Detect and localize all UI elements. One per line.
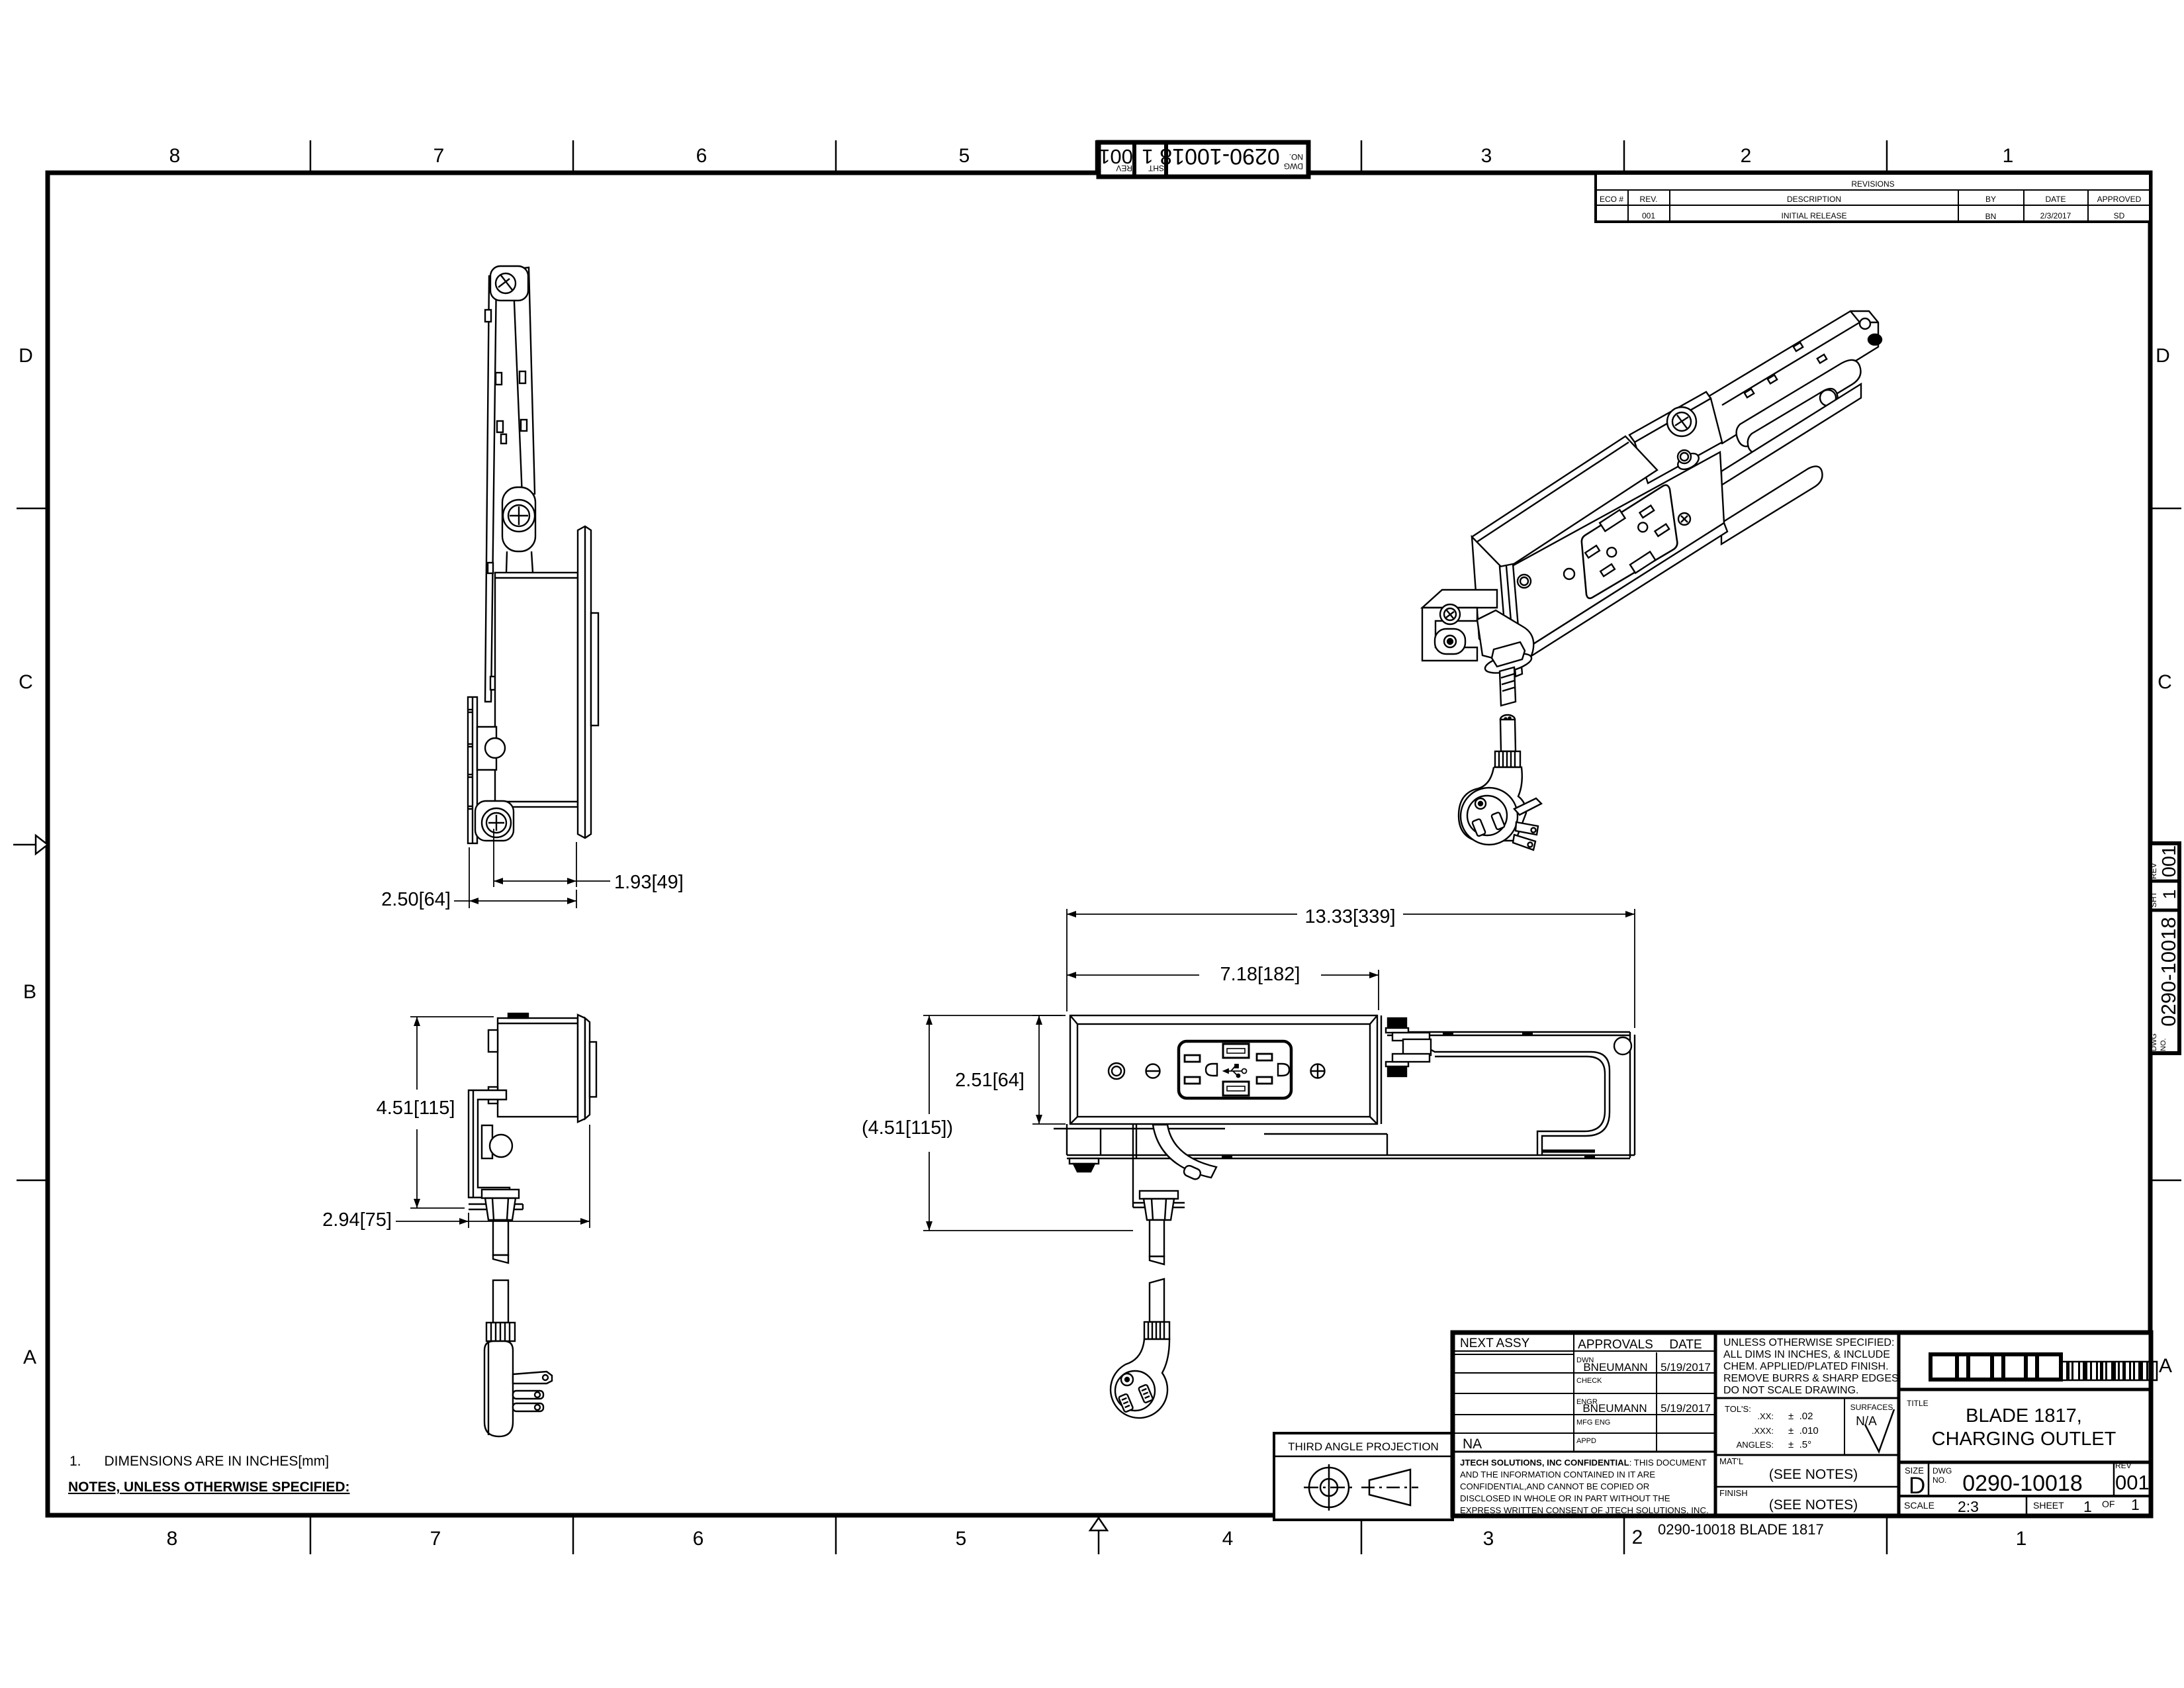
svg-text:0290-10018: 0290-10018 bbox=[1160, 144, 1280, 169]
svg-text:0290-10018 BLADE 1817: 0290-10018 BLADE 1817 bbox=[1658, 1521, 1824, 1538]
svg-text:± .010: ± .010 bbox=[1788, 1425, 1819, 1436]
svg-text:C: C bbox=[2158, 671, 2172, 693]
svg-text:BNEUMANN: BNEUMANN bbox=[1582, 1402, 1647, 1415]
svg-text:INITIAL RELEASE: INITIAL RELEASE bbox=[1782, 211, 1847, 220]
svg-text:1. DIMENSIONS ARE IN INCH: 1. DIMENSIONS ARE IN INCHES[mm] bbox=[69, 1454, 329, 1469]
svg-text:1: 1 bbox=[2003, 145, 2014, 167]
svg-text:3: 3 bbox=[1483, 1528, 1494, 1550]
svg-text:TITLE: TITLE bbox=[1907, 1399, 1929, 1408]
svg-text:± .5°: ± .5° bbox=[1788, 1439, 1811, 1450]
svg-text:REMOVE BURRS & SHARP EDGES.: REMOVE BURRS & SHARP EDGES. bbox=[1723, 1373, 1901, 1384]
svg-text:2.50[64]: 2.50[64] bbox=[381, 889, 451, 910]
svg-text:NOTES, UNLESS OTHERWISE SPECIF: NOTES, UNLESS OTHERWISE SPECIFIED: bbox=[68, 1479, 350, 1495]
svg-text:1: 1 bbox=[2160, 889, 2179, 899]
svg-text:1: 1 bbox=[2016, 1528, 2027, 1550]
svg-text:0290-10018: 0290-10018 bbox=[1962, 1471, 2083, 1496]
svg-text:NEXT ASSY: NEXT ASSY bbox=[1460, 1336, 1530, 1350]
svg-text:2.51[64]: 2.51[64] bbox=[955, 1070, 1024, 1091]
svg-text:(SEE NOTES): (SEE NOTES) bbox=[1769, 1467, 1858, 1482]
svg-text:001: 001 bbox=[1642, 211, 1655, 220]
svg-text:DATE: DATE bbox=[2045, 195, 2066, 204]
svg-text:3: 3 bbox=[1481, 145, 1492, 167]
svg-text:6: 6 bbox=[696, 145, 707, 167]
svg-text:ECO #: ECO # bbox=[1600, 195, 1623, 204]
svg-text:SURFACES: SURFACES bbox=[1850, 1403, 1893, 1412]
svg-text:REV: REV bbox=[2115, 1461, 2132, 1470]
svg-text:001: 001 bbox=[1099, 145, 1133, 168]
svg-text:1: 1 bbox=[2131, 1496, 2140, 1513]
svg-text:BY: BY bbox=[1985, 195, 1996, 204]
svg-text:DISCLOSED IN WHOLE OR IN PART: DISCLOSED IN WHOLE OR IN PART WITHOUT TH… bbox=[1460, 1493, 1670, 1503]
svg-text:± .02: ± .02 bbox=[1788, 1411, 1813, 1422]
svg-text:5: 5 bbox=[959, 145, 970, 167]
svg-text:BN: BN bbox=[1985, 212, 1997, 221]
svg-text:CHECK: CHECK bbox=[1576, 1377, 1602, 1385]
svg-text:6: 6 bbox=[693, 1528, 704, 1550]
svg-text:NO.: NO. bbox=[2160, 1038, 2167, 1051]
svg-text:DWG: DWG bbox=[2150, 1033, 2158, 1051]
svg-text:7: 7 bbox=[433, 145, 445, 167]
svg-text:APPROVALS: APPROVALS bbox=[1578, 1338, 1653, 1352]
svg-text:SCALE: SCALE bbox=[1904, 1500, 1934, 1511]
svg-text:SHT: SHT bbox=[2149, 891, 2158, 908]
svg-text:CONFIDENTIAL,AND CANNOT BE COP: CONFIDENTIAL,AND CANNOT BE COPIED OR bbox=[1460, 1481, 1649, 1491]
svg-text:2.94[75]: 2.94[75] bbox=[322, 1209, 392, 1231]
svg-text:C: C bbox=[19, 671, 33, 693]
svg-text:001: 001 bbox=[2115, 1471, 2150, 1494]
svg-text:NA: NA bbox=[1463, 1436, 1482, 1452]
svg-text:.XXX:: .XXX: bbox=[1752, 1426, 1774, 1436]
svg-text:4: 4 bbox=[1222, 1528, 1234, 1550]
svg-text:13.33[339]: 13.33[339] bbox=[1304, 906, 1395, 927]
svg-text:DWG: DWG bbox=[1284, 162, 1303, 171]
svg-text:REV.: REV. bbox=[1640, 195, 1658, 204]
svg-text:5/19/2017: 5/19/2017 bbox=[1661, 1402, 1711, 1415]
svg-text:D: D bbox=[2156, 345, 2170, 367]
svg-text:5/19/2017: 5/19/2017 bbox=[1661, 1361, 1711, 1374]
svg-text:UNLESS OTHERWISE SPECIFIED:: UNLESS OTHERWISE SPECIFIED: bbox=[1723, 1337, 1894, 1348]
svg-text:2:3: 2:3 bbox=[1958, 1498, 1979, 1515]
svg-text:ALL DIMS IN INCHES, & INCLUDE: ALL DIMS IN INCHES, & INCLUDE bbox=[1723, 1349, 1890, 1360]
svg-text:APPROVED: APPROVED bbox=[2097, 195, 2142, 204]
svg-text:2/3/2017: 2/3/2017 bbox=[2040, 211, 2071, 220]
svg-text:THIRD ANGLE PROJECTION: THIRD ANGLE PROJECTION bbox=[1288, 1440, 1439, 1453]
svg-text:DO NOT SCALE DRAWING.: DO NOT SCALE DRAWING. bbox=[1723, 1385, 1858, 1396]
svg-text:NO.: NO. bbox=[1289, 152, 1303, 162]
svg-text:1.93[49]: 1.93[49] bbox=[614, 872, 684, 893]
svg-text:8: 8 bbox=[169, 145, 181, 167]
svg-text:4.51[115]: 4.51[115] bbox=[377, 1098, 455, 1119]
svg-text:SD: SD bbox=[2114, 211, 2125, 220]
svg-text:8: 8 bbox=[167, 1528, 178, 1550]
svg-text:DWG: DWG bbox=[1933, 1466, 1952, 1476]
svg-text:A: A bbox=[2159, 1355, 2172, 1377]
svg-text:D: D bbox=[19, 345, 33, 367]
svg-text:FINISH: FINISH bbox=[1719, 1488, 1748, 1498]
svg-text:BLADE 1817,: BLADE 1817, bbox=[1966, 1405, 2082, 1427]
svg-text:DESCRIPTION: DESCRIPTION bbox=[1787, 195, 1841, 204]
svg-text:CHARGING OUTLET: CHARGING OUTLET bbox=[1932, 1429, 2116, 1450]
svg-text:2: 2 bbox=[1632, 1526, 1643, 1548]
svg-text:7.18[182]: 7.18[182] bbox=[1220, 964, 1300, 985]
svg-text:001: 001 bbox=[2159, 845, 2180, 877]
svg-text:CHEM. APPLIED/PLATED FINISH.: CHEM. APPLIED/PLATED FINISH. bbox=[1723, 1361, 1889, 1372]
svg-text:NO.: NO. bbox=[1933, 1476, 1946, 1485]
svg-text:MFG ENG: MFG ENG bbox=[1576, 1419, 1610, 1427]
svg-text:A: A bbox=[23, 1346, 36, 1368]
svg-text:SHEET: SHEET bbox=[2033, 1500, 2064, 1511]
svg-text:MAT'L: MAT'L bbox=[1719, 1456, 1743, 1466]
svg-text:B: B bbox=[23, 981, 36, 1003]
svg-text:DATE: DATE bbox=[1669, 1338, 1702, 1352]
svg-text:1: 1 bbox=[1142, 145, 1153, 168]
svg-text:TOL'S:: TOL'S: bbox=[1725, 1404, 1751, 1414]
svg-text:(4.51[115]): (4.51[115]) bbox=[862, 1117, 953, 1139]
svg-text:1: 1 bbox=[2083, 1498, 2092, 1515]
svg-text:5: 5 bbox=[956, 1528, 967, 1550]
svg-text:.XX:: .XX: bbox=[1757, 1411, 1774, 1421]
svg-text:ANGLES:: ANGLES: bbox=[1737, 1440, 1774, 1450]
svg-text:0290-10018: 0290-10018 bbox=[2157, 917, 2180, 1027]
svg-text:AND THE INFORMATION CONTAINED: AND THE INFORMATION CONTAINED IN IT ARE bbox=[1460, 1470, 1655, 1479]
svg-text:2: 2 bbox=[1741, 145, 1752, 167]
svg-text:EXPRESS WRITTEN CONSENT OF JTE: EXPRESS WRITTEN CONSENT OF JTECH SOLUTIO… bbox=[1460, 1505, 1709, 1515]
svg-text:7: 7 bbox=[430, 1528, 441, 1550]
svg-text:(SEE NOTES): (SEE NOTES) bbox=[1769, 1497, 1858, 1513]
svg-text:OF: OF bbox=[2102, 1499, 2115, 1509]
svg-text:REV: REV bbox=[2149, 863, 2158, 879]
svg-text:JTECH SOLUTIONS, INC CONFIDENT: JTECH SOLUTIONS, INC CONFIDENTIAL: THIS … bbox=[1460, 1458, 1707, 1468]
svg-text:REVISIONS: REVISIONS bbox=[1851, 179, 1894, 189]
svg-text:APPD: APPD bbox=[1576, 1437, 1596, 1445]
svg-text:BNEUMANN: BNEUMANN bbox=[1583, 1361, 1647, 1374]
